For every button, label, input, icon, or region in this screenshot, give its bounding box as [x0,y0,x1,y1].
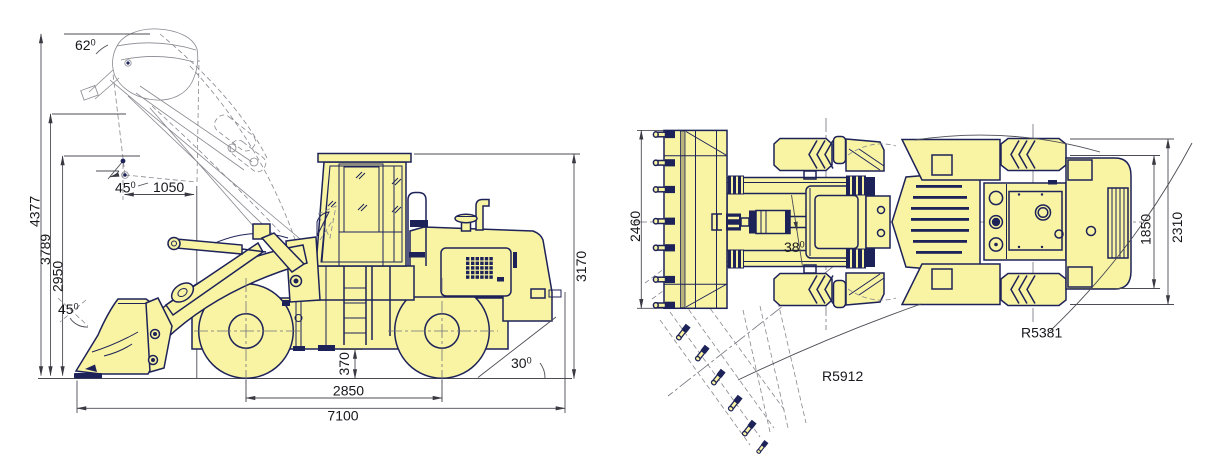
svg-text:300: 300 [511,355,532,371]
svg-text:370: 370 [336,352,352,376]
svg-text:2310: 2310 [1169,212,1185,243]
svg-text:2950: 2950 [50,261,66,292]
svg-text:2460: 2460 [627,211,643,242]
svg-text:R5912: R5912 [822,368,863,384]
svg-text:7100: 7100 [327,408,358,424]
svg-text:1050: 1050 [153,179,184,195]
svg-text:450: 450 [115,180,136,196]
svg-text:620: 620 [75,37,96,53]
svg-text:3170: 3170 [573,251,589,282]
svg-text:4377: 4377 [27,196,43,227]
svg-text:R5381: R5381 [1021,325,1062,341]
svg-text:3789: 3789 [37,234,53,265]
svg-text:2850: 2850 [333,383,364,399]
svg-text:1850: 1850 [1138,214,1154,245]
